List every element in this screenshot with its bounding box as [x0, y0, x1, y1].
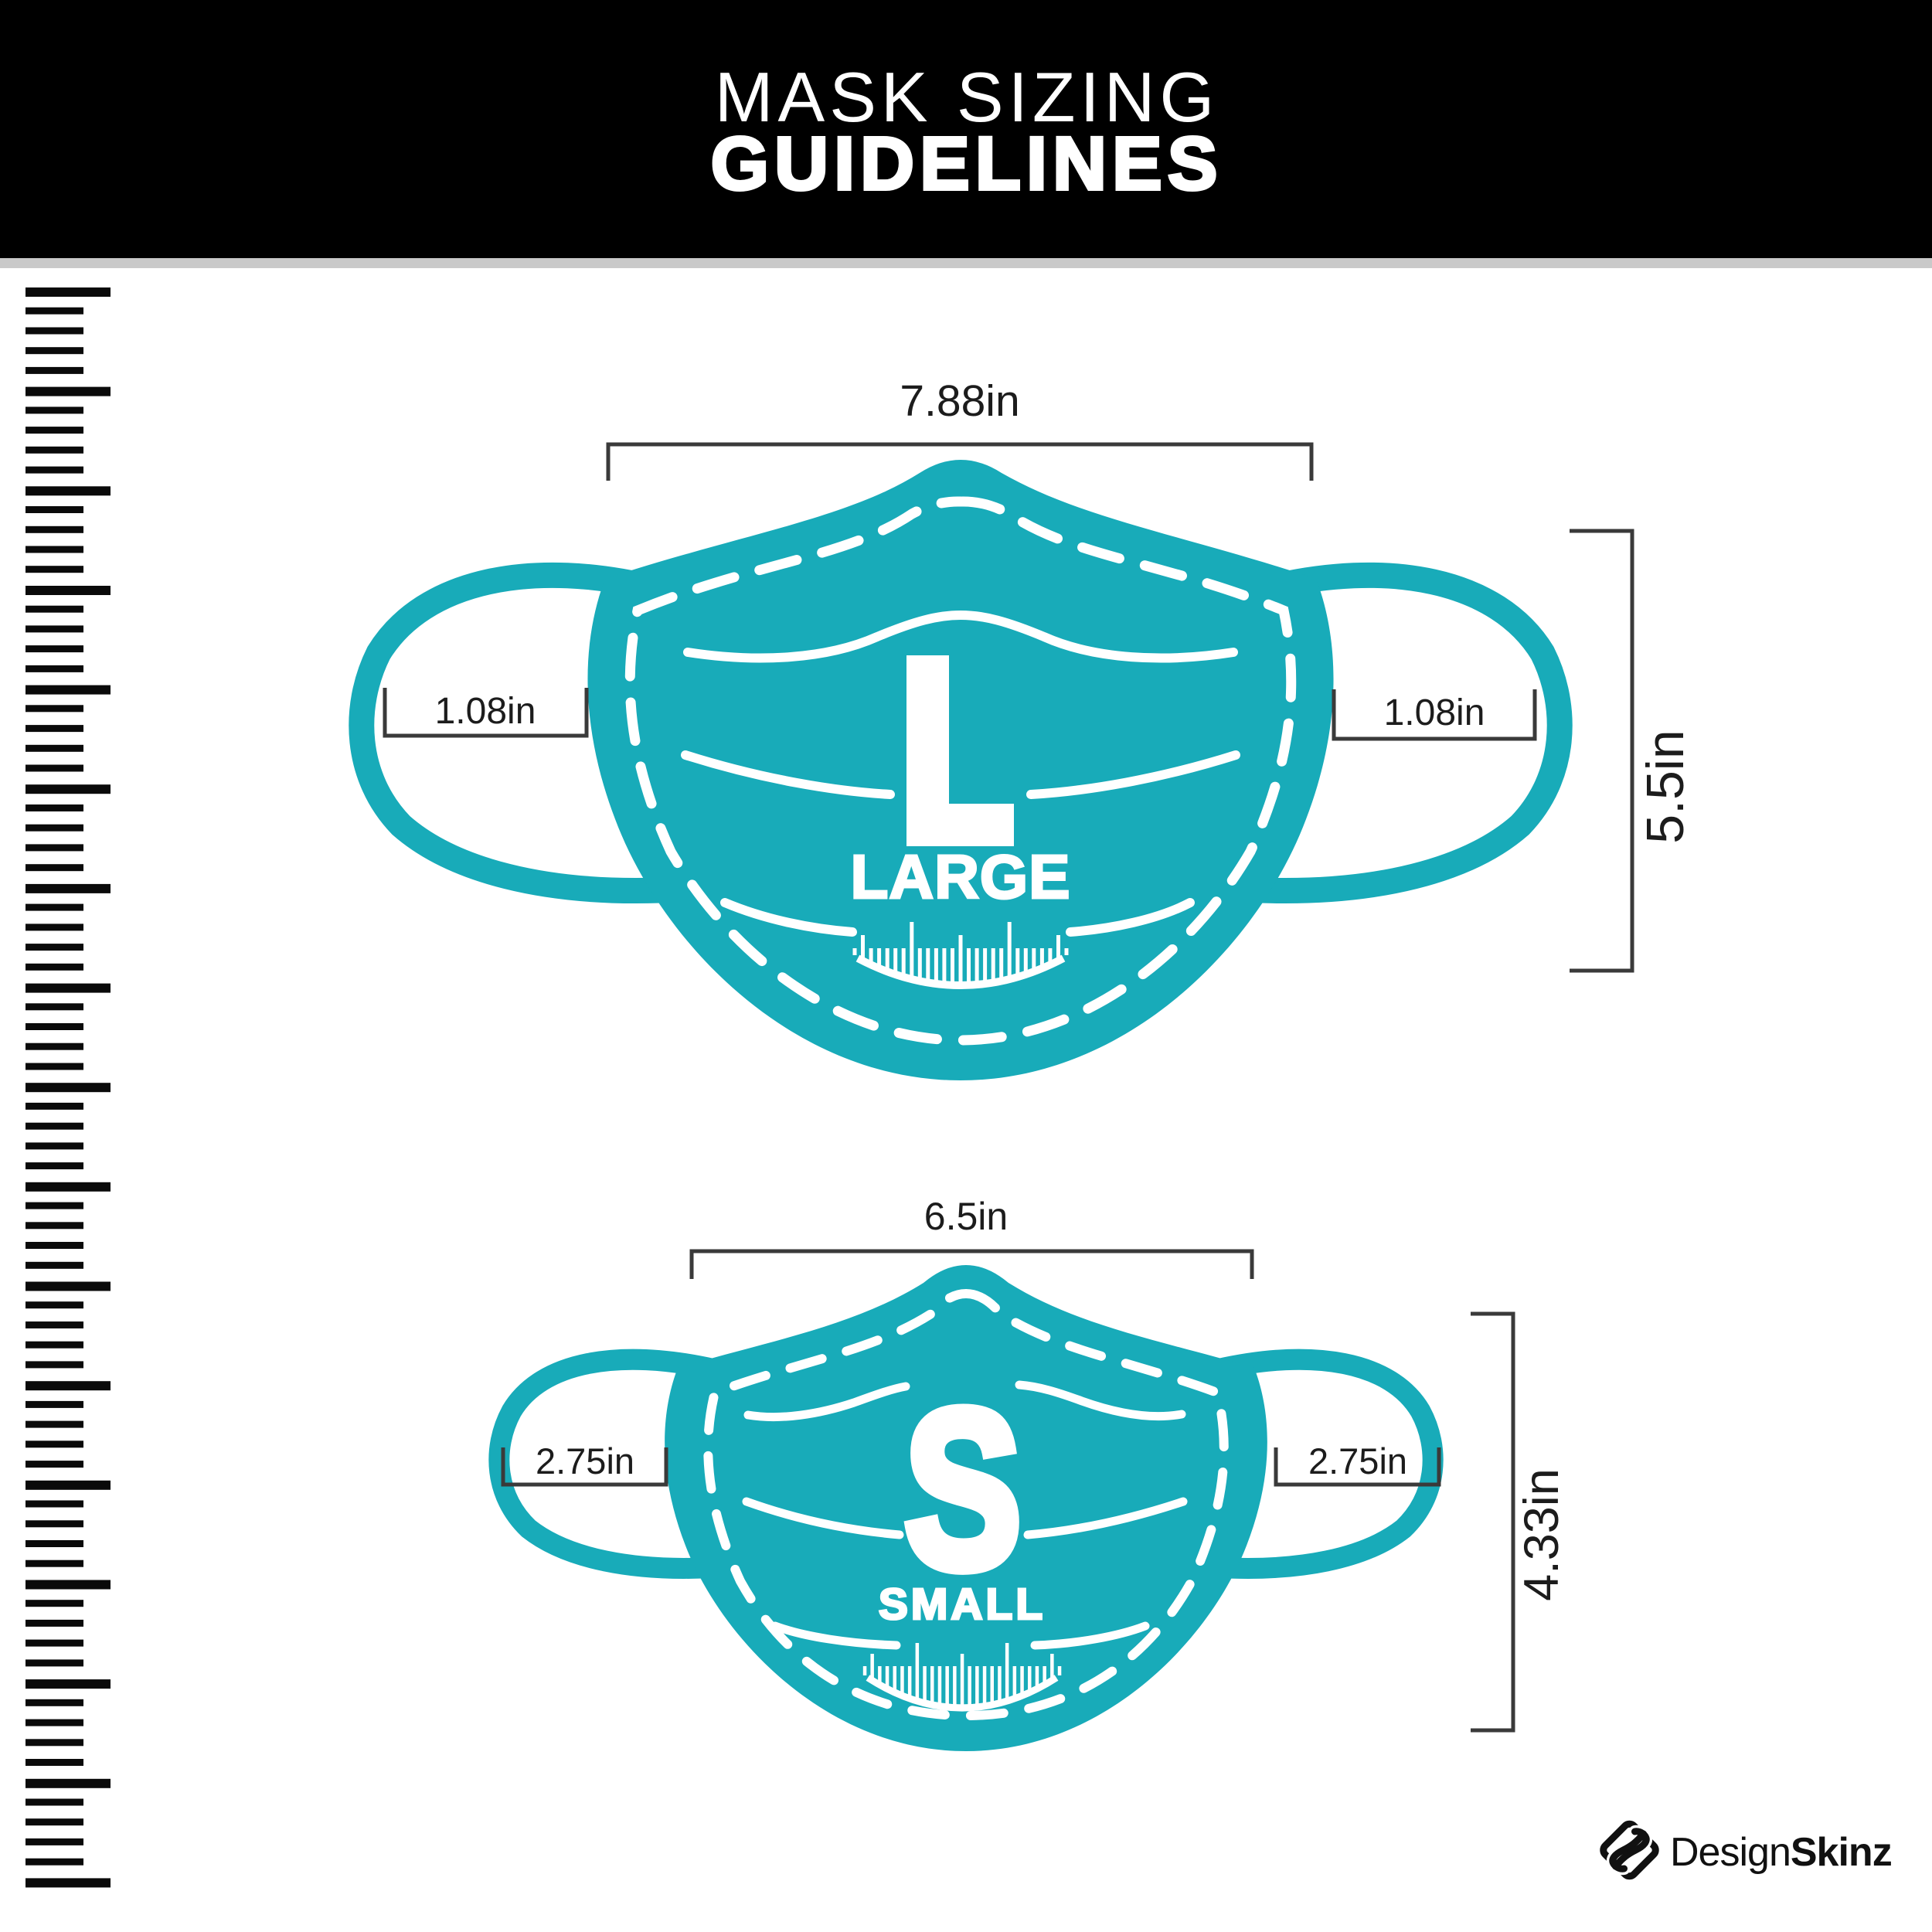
svg-text:4.33in: 4.33in — [1515, 1468, 1569, 1601]
svg-text:S: S — [905, 1365, 1022, 1614]
svg-text:1.08in: 1.08in — [1384, 692, 1485, 733]
svg-text:DesignSkinz: DesignSkinz — [1670, 1830, 1892, 1875]
svg-text:7.88in: 7.88in — [900, 376, 1019, 426]
svg-text:6.5in: 6.5in — [924, 1195, 1008, 1238]
svg-text:SMALL: SMALL — [879, 1580, 1046, 1629]
svg-text:5.5in: 5.5in — [1636, 730, 1695, 843]
svg-text:LARGE: LARGE — [851, 842, 1071, 911]
svg-text:2.75in: 2.75in — [1308, 1440, 1407, 1481]
svg-text:2.75in: 2.75in — [536, 1440, 634, 1481]
svg-text:1.08in: 1.08in — [435, 691, 536, 732]
svg-text:GUIDELINES: GUIDELINES — [711, 121, 1223, 206]
